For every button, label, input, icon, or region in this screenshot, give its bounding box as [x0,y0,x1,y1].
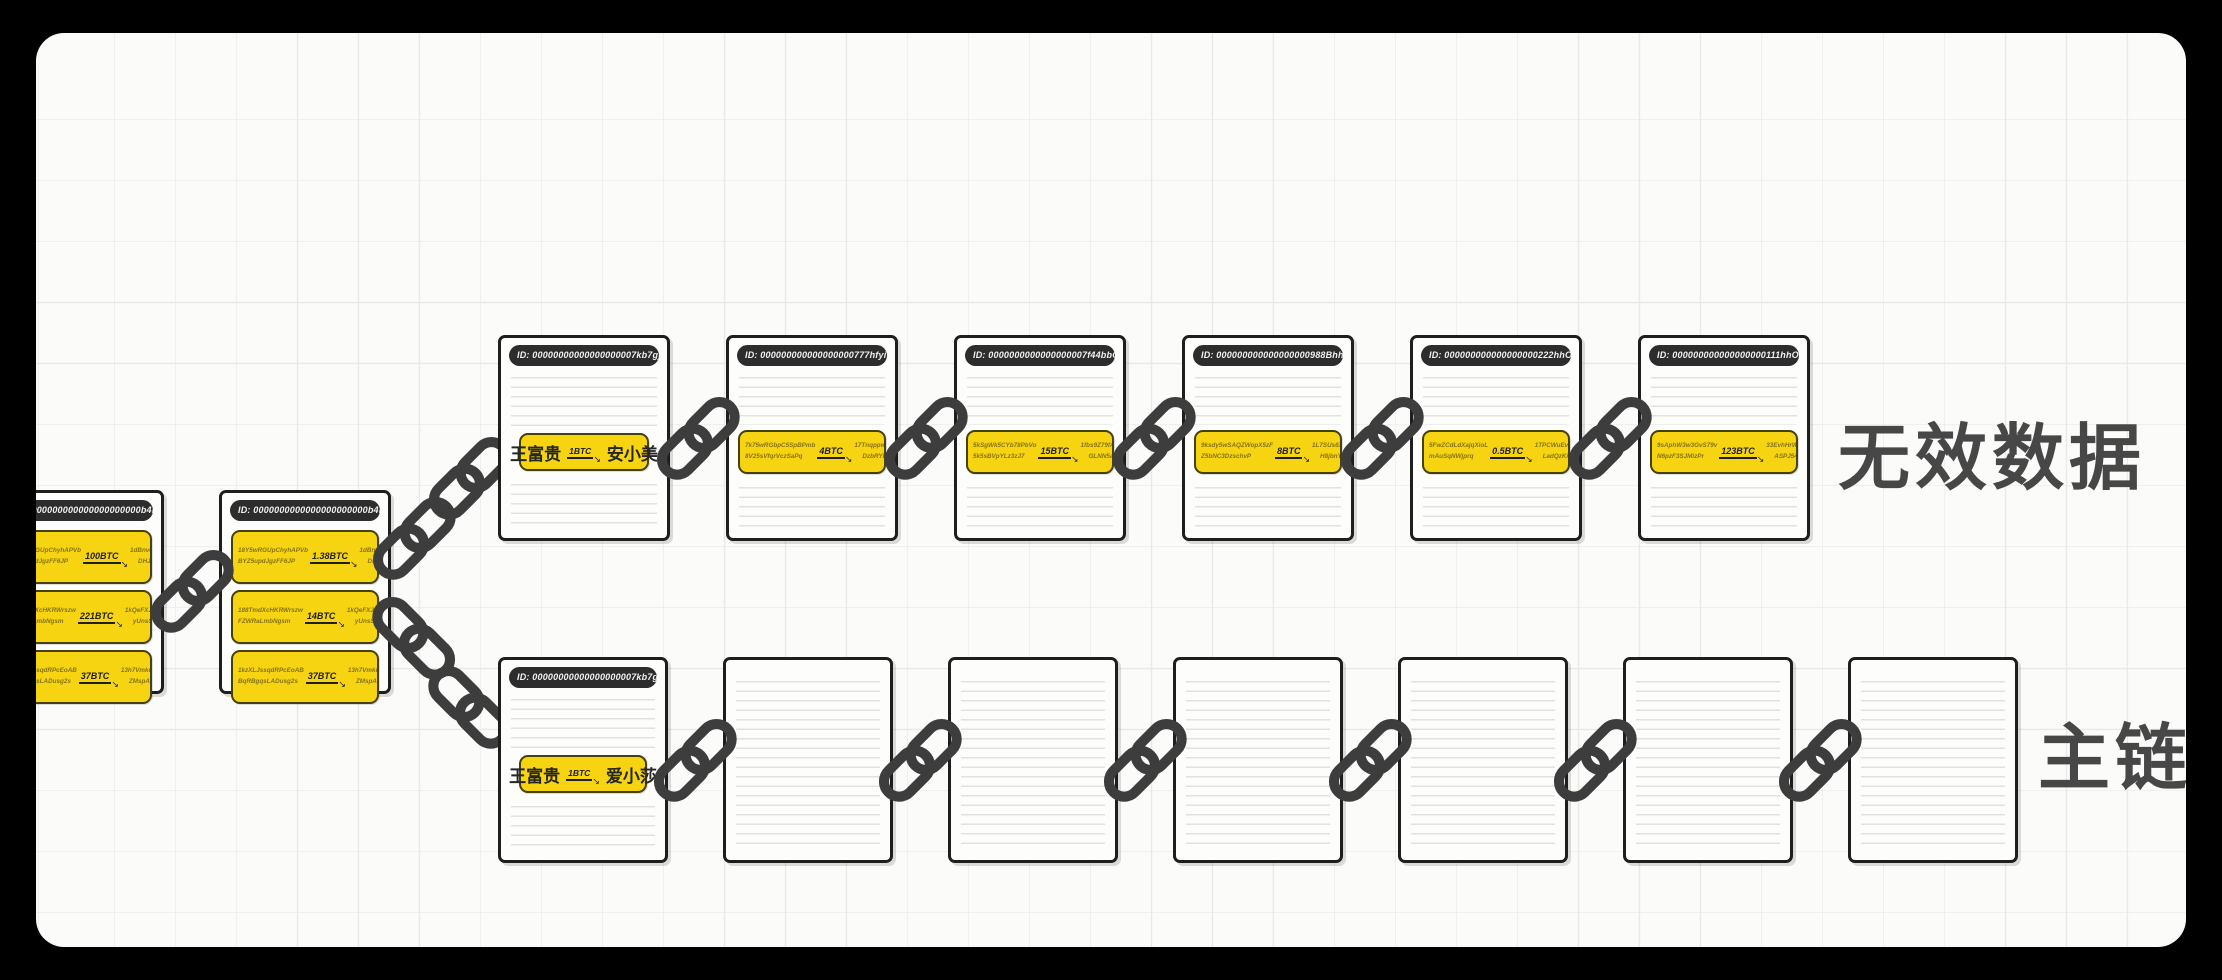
tx-from-address: 1kzXLJssqdRPcEoAB [238,667,304,674]
transfer-arrow-icon: ↘ [337,620,345,629]
tx-row: 5kSgWk5CYb78PbVo5k5sBVpYLz3zJ7 15BTC↘ 1f… [966,430,1114,474]
tx-from-address: 18Y5wRGUpChyhAPVb [36,547,81,554]
tx-from-address: 5kSgWk5CYb78PbVo [973,442,1036,449]
ruled-lines [1636,673,1780,850]
ruled-lines [511,798,655,850]
tx-amount: 37BTC [306,671,339,684]
block-id-pill: ID: 0000000000000000007f44bbO90g1b04Xc..… [965,345,1115,366]
tx-amount: 37BTC [79,671,112,684]
page: { "labels": { "invalid_chain": "无效数据", "… [0,0,2222,980]
block-id-pill: ID: 0000000000000000000000b4b55b71f8d6ed… [36,500,153,521]
ruled-lines [1195,479,1341,528]
block-invalid-6: ID: 000000000000000000111hhO90g1b04Xc...… [1638,335,1810,541]
tx-amount: 1BTC [567,446,593,459]
tx-row: 1kzXLJssqdRPcEoABBqRBgqsLADusg2s 37BTC↘ … [36,650,152,704]
transfer-arrow-icon: ↘ [845,455,853,464]
receiver-name: 安小美 [607,440,658,465]
sender-name: 王富贵 [510,440,561,465]
chain-link-icon [146,545,238,637]
transfer-arrow-icon: ↘ [1302,455,1310,464]
chain-link-icon [1108,392,1200,484]
ruled-lines [739,369,885,425]
tx-row-named: 王富贵 1BTC↘ 爱小莎 [519,755,647,793]
block-main-6 [1623,657,1793,863]
tx-row: 1kzXLJssqdRPcEoABBqRBgqsLADusg2s 37BTC↘ … [231,650,379,704]
tx-amount: 15BTC [1038,446,1071,459]
ruled-lines [961,673,1105,850]
block-invalid-4: ID: 000000000000000000988Bhh090g1b04Xc..… [1182,335,1354,541]
block-main-3 [948,657,1118,863]
block-id-pill: ID: 00000000000000000007kb7gjK'k1b55ya..… [509,667,657,688]
chain-link-icon [1564,392,1656,484]
ruled-lines [967,479,1113,528]
tx-amount: 4BTC [817,446,845,459]
ruled-lines [1651,369,1797,425]
tx-row: 9sAphW3w3GvS79vN6pzF3SJMizPr 123BTC↘ 33E… [1650,430,1798,474]
block-id-pill: ID: 000000000000000000988Bhh090g1b04Xc..… [1193,345,1343,366]
tx-amount: 8BTC [1275,446,1303,459]
chain-link-icon [1549,714,1641,806]
tx-from-address: 188TmdXcHKRWrszw [238,607,303,614]
transfer-arrow-icon: ↘ [350,560,358,569]
tx-to-address: 13h7VmkuzoM7SH3kkA [121,667,152,674]
transfer-arrow-icon: ↘ [1525,455,1533,464]
transfer-arrow-icon: ↘ [115,620,123,629]
tx-amount: 100BTC [83,551,121,564]
ruled-lines [511,691,655,750]
ruled-lines [1423,369,1569,425]
invalid-chain-label: 无效数据 [1838,399,2146,504]
ruled-lines [511,476,657,528]
tx-row: 188TmdXcHKRWrszwFZWRaLmbNgsm 14BTC↘ 1kQe… [231,590,379,644]
transfer-arrow-icon: ↘ [111,680,119,689]
tx-amount: 1BTC [566,768,592,781]
ruled-lines [739,479,885,528]
ruled-lines [511,369,657,428]
tx-row: 5FwZCdLdXajqXioLmAuSqNWjprq 0.5BTC↘ 1TPC… [1422,430,1570,474]
tx-amount: 0.5BTC [1490,446,1525,459]
tx-amount: 123BTC [1719,446,1757,459]
chain-link-icon [880,392,972,484]
tx-row: 188TmdXcHKRWrszwFZWRaLmbNgsm 221BTC↘ 1kQ… [36,590,152,644]
ruled-lines [736,673,880,850]
tx-amount: 1.38BTC [310,551,350,564]
ruled-lines [1861,673,2005,850]
tx-from-address: 18Y5wRGUpChyhAPVb [238,547,308,554]
block-id-pill: ID: 000000000000000000222hhO90g1b04Xc... [1421,345,1571,366]
tx-row: 18Y5wRGUpChyhAPVbBYZ5updJgzFF6JP 1.38BTC… [231,530,379,584]
tx-from-address: 7k75wRGbpC5SpBPmb [745,442,815,449]
tx-from-address: 188TmdXcHKRWrszw [36,607,76,614]
chain-link-icon [1774,714,1866,806]
block-main-1: ID: 00000000000000000007kb7gjK'k1b55ya..… [498,657,668,863]
block-parent-1: ID: 0000000000000000000000b4b55b71f8d6ed… [36,490,164,694]
chain-link-icon [1324,714,1416,806]
block-invalid-2: ID: 000000000000000000777hfyiTUg1b04Xc..… [726,335,898,541]
tx-amount: 221BTC [78,611,116,624]
ruled-lines [1411,673,1555,850]
tx-from-address: 9ksdy5wSAQZWopX5zF [1201,442,1273,449]
tx-row: 18Y5wRGUpChyhAPVbBYZ5updJgzFF6JP 100BTC↘… [36,530,152,584]
block-main-5 [1398,657,1568,863]
whiteboard-canvas: ID: 0000000000000000000000b4b55b71f8d6ed… [36,33,2186,947]
transfer-arrow-icon: ↘ [593,455,601,464]
block-invalid-3: ID: 0000000000000000007f44bbO90g1b04Xc..… [954,335,1126,541]
block-id-pill: ID: 00000000000000000007kb7gjK'k1b55ya..… [509,345,659,366]
transfer-arrow-icon: ↘ [338,680,346,689]
ruled-lines [967,369,1113,425]
chain-link-icon [1099,714,1191,806]
chain-link-icon [652,392,744,484]
tx-row: 7k75wRGbpC5SpBPmb8V25sVfqrVczSaPq 4BTC↘ … [738,430,886,474]
main-chain-label: 主链 [2038,699,2186,804]
ruled-lines [1186,673,1330,850]
chain-link-icon [649,714,741,806]
tx-amount: 14BTC [305,611,338,624]
chain-link-icon [1336,392,1428,484]
transfer-arrow-icon: ↘ [592,777,600,786]
transfer-arrow-icon: ↘ [1071,455,1079,464]
block-id-pill: ID: 000000000000000000111hhO90g1b04Xc... [1649,345,1799,366]
chain-link-icon [874,714,966,806]
tx-row-named: 王富贵 1BTC↘ 安小美 [519,433,649,471]
tx-to-address: 33EvhHrWLKn75SRGpe [1766,442,1798,449]
ruled-lines [1195,369,1341,425]
tx-from-address: 1kzXLJssqdRPcEoAB [36,667,77,674]
transfer-arrow-icon: ↘ [121,560,129,569]
ruled-lines [1423,479,1569,528]
block-main-2 [723,657,893,863]
ruled-lines [1651,479,1797,528]
block-id-pill: ID: 0000000000000000000000b4b55b71f8d6ed… [230,500,380,521]
block-invalid-1: ID: 00000000000000000007kb7gjK'k1b55ya..… [498,335,670,541]
block-main-4 [1173,657,1343,863]
tx-from-address: 5FwZCdLdXajqXioL [1429,442,1488,449]
tx-from-address: 9sAphW3w3GvS79v [1657,442,1717,449]
tx-row: 9ksdy5wSAQZWopX5zFZ5bNC3DzschvP 8BTC↘ 1L… [1194,430,1342,474]
block-id-pill: ID: 000000000000000000777hfyiTUg1b04Xc..… [737,345,887,366]
transfer-arrow-icon: ↘ [1757,455,1765,464]
block-invalid-5: ID: 000000000000000000222hhO90g1b04Xc...… [1410,335,1582,541]
sender-name: 王富贵 [509,762,560,787]
block-main-7 [1848,657,2018,863]
block-parent-2: ID: 0000000000000000000000b4b55b71f8d6ed… [219,490,391,694]
